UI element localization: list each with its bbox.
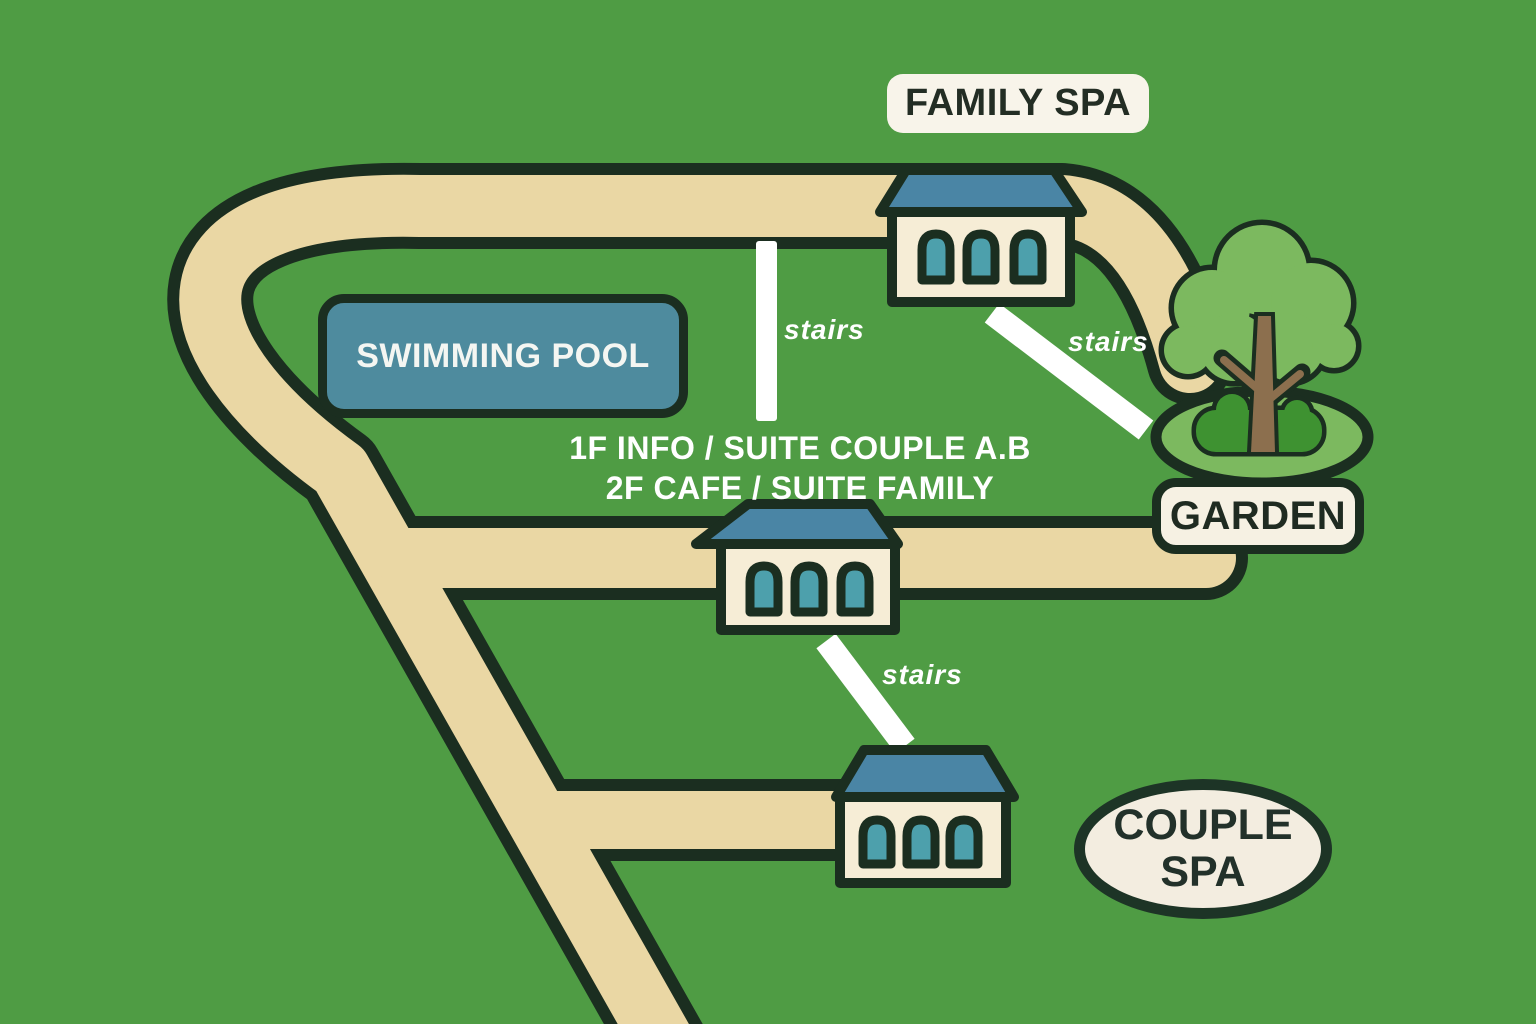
stairs-line-vertical [756,241,777,421]
swimming-pool-text: SWIMMING POOL [356,337,650,376]
stairs-label-couple: stairs [882,659,963,691]
family-spa-label: FAMILY SPA [887,74,1149,133]
windows [863,820,978,864]
house-icon-family-spa [880,170,1082,302]
spa-resort-map: FAMILY SPA SWIMMING POOL 1F INFO / SUITE… [0,0,1536,1024]
info-line-1: 1F INFO / SUITE COUPLE A.B [540,428,1060,468]
windows [750,566,869,612]
couple-spa-line-2: SPA [1160,849,1245,896]
stairs-label-top: stairs [784,314,865,346]
stairs-line-couple [826,641,905,746]
garden-label: GARDEN [1152,478,1364,554]
windows [922,234,1042,280]
family-spa-text: FAMILY SPA [905,82,1131,125]
stairs-label-garden: stairs [1068,326,1149,358]
house-icon-info-cafe [696,504,898,630]
info-line-2: 2F CAFE / SUITE FAMILY [540,468,1060,508]
couple-spa-label: COUPLE SPA [1074,779,1332,919]
building-info-text: 1F INFO / SUITE COUPLE A.B 2F CAFE / SUI… [540,428,1060,508]
couple-spa-line-1: COUPLE [1113,802,1292,849]
swimming-pool: SWIMMING POOL [318,294,688,418]
house-icon-couple-spa [836,750,1014,883]
garden-text: GARDEN [1170,494,1346,539]
